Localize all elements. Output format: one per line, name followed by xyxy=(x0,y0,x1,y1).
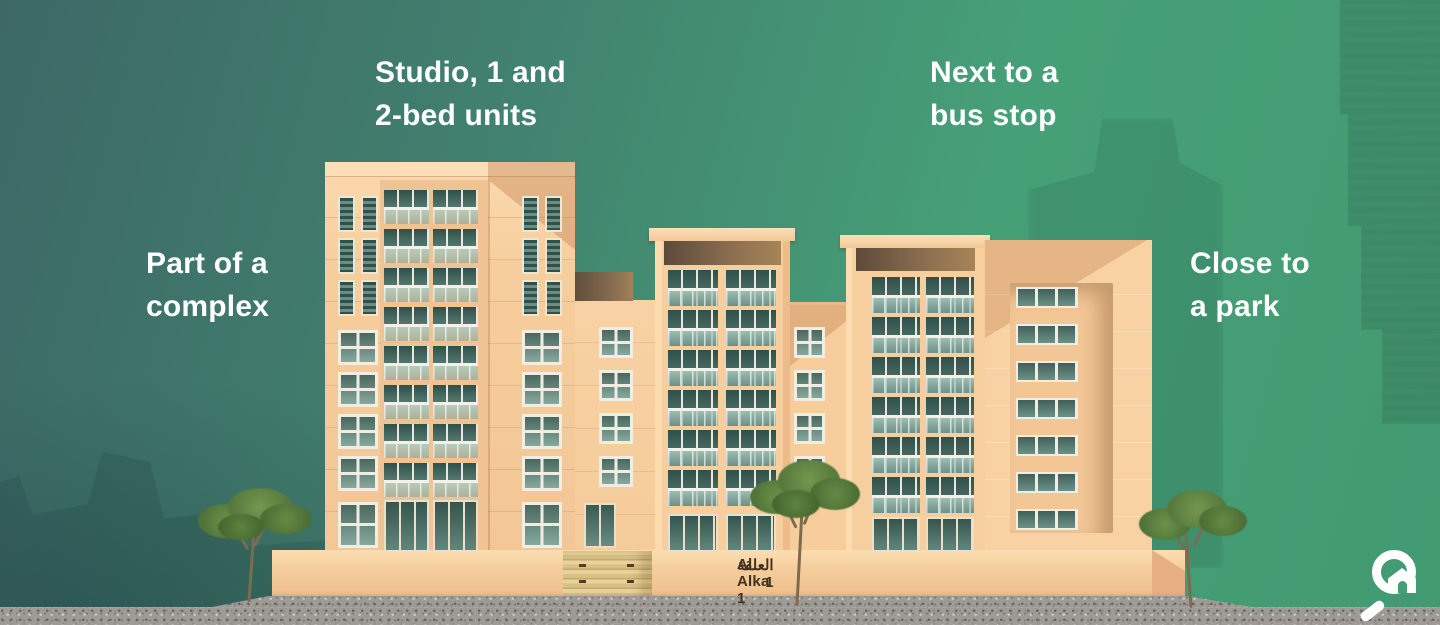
window xyxy=(926,277,974,313)
feature-label-park: Close to a park xyxy=(1190,242,1310,328)
window xyxy=(726,390,776,426)
gravel-ground xyxy=(0,607,1440,625)
window xyxy=(522,456,562,491)
window xyxy=(726,430,776,466)
window xyxy=(599,327,633,358)
window xyxy=(523,282,561,314)
window xyxy=(384,346,429,380)
house-door-notch xyxy=(1398,581,1407,593)
window xyxy=(668,310,718,346)
window xyxy=(872,317,920,353)
window xyxy=(926,317,974,353)
window xyxy=(433,500,478,552)
window xyxy=(668,430,718,466)
window xyxy=(384,500,429,552)
window xyxy=(668,270,718,306)
window xyxy=(1016,435,1078,456)
window xyxy=(926,477,974,513)
window xyxy=(384,190,429,224)
window xyxy=(433,190,478,224)
window xyxy=(726,350,776,386)
window xyxy=(384,424,429,458)
window xyxy=(872,437,920,473)
building-name-ar: العلقة 1 xyxy=(737,556,774,591)
window xyxy=(668,514,718,552)
window xyxy=(599,456,633,487)
window xyxy=(872,397,920,433)
window xyxy=(338,372,378,407)
window xyxy=(338,330,378,365)
window xyxy=(433,424,478,458)
window xyxy=(599,370,633,401)
window xyxy=(926,397,974,433)
window xyxy=(338,502,378,548)
infographic-canvas: Al Alka 1 العلقة 1 Studio, 1 and 2-bed u… xyxy=(0,0,1440,625)
window xyxy=(599,413,633,444)
window xyxy=(522,372,562,407)
window xyxy=(726,470,776,506)
window xyxy=(523,240,561,272)
window xyxy=(433,229,478,263)
window xyxy=(668,470,718,506)
window xyxy=(384,385,429,419)
window xyxy=(872,517,920,552)
window xyxy=(384,463,429,497)
window xyxy=(794,413,825,444)
window xyxy=(872,477,920,513)
window xyxy=(339,198,377,230)
window xyxy=(872,357,920,393)
window xyxy=(726,310,776,346)
window xyxy=(433,385,478,419)
window xyxy=(1016,361,1078,382)
window xyxy=(726,514,776,552)
feature-label-units: Studio, 1 and 2-bed units xyxy=(375,51,566,137)
window xyxy=(433,307,478,341)
window xyxy=(1016,398,1078,419)
window xyxy=(339,282,377,314)
window xyxy=(384,268,429,302)
bayut-logo xyxy=(1352,540,1440,625)
window xyxy=(433,268,478,302)
window xyxy=(668,390,718,426)
window xyxy=(794,370,825,401)
window xyxy=(1016,324,1078,345)
window xyxy=(522,414,562,449)
window xyxy=(384,229,429,263)
window xyxy=(926,437,974,473)
window xyxy=(926,517,974,552)
entrance-stairs xyxy=(563,551,652,600)
magnifier-handle xyxy=(1359,599,1386,624)
window xyxy=(1016,287,1078,308)
window xyxy=(668,350,718,386)
window xyxy=(433,346,478,380)
window xyxy=(338,414,378,449)
window xyxy=(522,330,562,365)
feature-label-bus-stop: Next to a bus stop xyxy=(930,51,1059,137)
window xyxy=(1016,509,1078,530)
window xyxy=(384,307,429,341)
window xyxy=(794,327,825,358)
window xyxy=(584,503,616,548)
window xyxy=(794,456,825,487)
window xyxy=(872,277,920,313)
feature-label-complex: Part of a complex xyxy=(146,242,269,328)
window xyxy=(726,270,776,306)
window xyxy=(338,456,378,491)
window xyxy=(523,198,561,230)
window xyxy=(339,240,377,272)
window xyxy=(433,463,478,497)
window xyxy=(926,357,974,393)
window xyxy=(1016,472,1078,493)
window xyxy=(522,502,562,548)
